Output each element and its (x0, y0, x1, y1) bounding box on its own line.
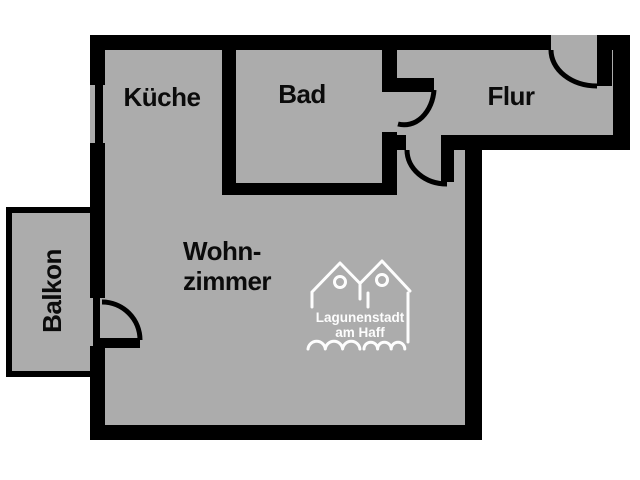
room-label-wohnzimmer: Wohn- zimmer (183, 236, 271, 296)
floor-plan: Küche Bad Flur Wohn- zimmer Balkon Lagun… (0, 0, 640, 480)
door-arc-bad (398, 90, 434, 125)
door-arc-living-room (407, 150, 447, 184)
door-arc-entrance (551, 50, 597, 86)
room-label-kueche: Küche (112, 82, 212, 113)
door-arc-balcony (102, 302, 140, 340)
room-label-wohnzimmer-line2: zimmer (183, 266, 271, 296)
room-label-wohnzimmer-line1: Wohn- (183, 236, 271, 266)
logo-text-line2: am Haff (335, 325, 385, 340)
room-label-balkon: Balkon (37, 211, 67, 371)
waves-icon (308, 341, 405, 349)
lagunenstadt-logo: Lagunenstadt am Haff (300, 252, 414, 360)
wave-right (364, 342, 405, 349)
right-house-window-icon (377, 275, 388, 286)
wave-left (308, 341, 360, 349)
room-label-bad: Bad (262, 79, 342, 110)
logo-text-line1: Lagunenstadt (316, 310, 405, 325)
left-house-window-icon (335, 277, 346, 288)
door-arcs-layer (0, 0, 640, 480)
room-label-flur: Flur (471, 81, 551, 112)
